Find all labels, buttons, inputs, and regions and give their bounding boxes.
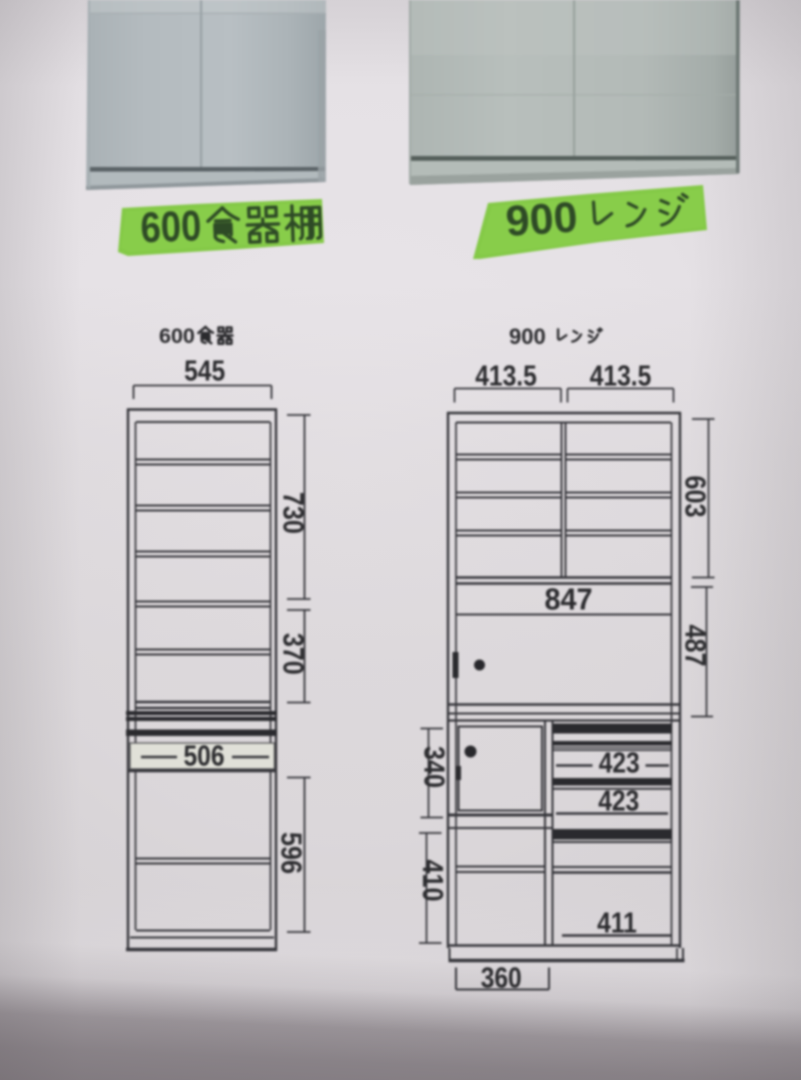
svg-text:506: 506	[183, 740, 224, 772]
svg-text:603: 603	[679, 476, 712, 518]
svg-text:413.5: 413.5	[475, 360, 537, 392]
svg-text:360: 360	[481, 962, 522, 994]
svg-text:900: 900	[509, 324, 546, 349]
svg-text:487: 487	[679, 625, 712, 667]
svg-text:596: 596	[275, 832, 308, 874]
svg-text:600: 600	[159, 324, 195, 348]
svg-text:600: 600	[140, 203, 203, 253]
svg-text:423: 423	[598, 785, 639, 817]
svg-text:847: 847	[544, 583, 592, 617]
svg-text:730: 730	[277, 492, 310, 534]
svg-text:340: 340	[418, 746, 451, 788]
svg-text:410: 410	[417, 860, 450, 902]
svg-text:545: 545	[184, 355, 225, 387]
svg-text:411: 411	[597, 907, 637, 939]
svg-text:900: 900	[504, 193, 579, 246]
svg-text:423: 423	[599, 747, 640, 779]
svg-text:370: 370	[277, 633, 310, 675]
svg-text:413.5: 413.5	[590, 360, 652, 392]
